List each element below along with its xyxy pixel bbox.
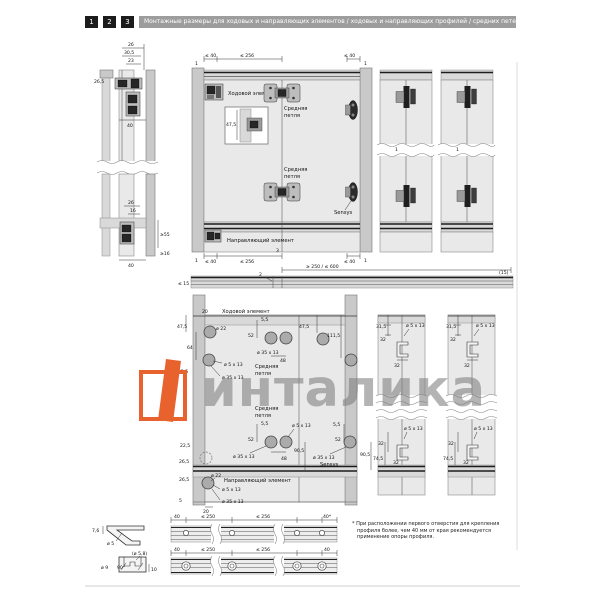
watermark-text: инталика: [201, 358, 486, 422]
part-label-guide: Направляющий элемент: [224, 477, 291, 484]
dim-label: 1: [456, 147, 459, 153]
dim-label: ≤ 256: [256, 547, 270, 553]
dim-label: ≥55: [160, 232, 170, 238]
dim-label: 31,5: [376, 324, 386, 330]
technical-drawing: 26 30,5 23 26,5 40 26 16 ≥55 ≥16 40: [0, 0, 600, 600]
dim-label: 48: [281, 456, 287, 462]
dim-label: ≤ 40: [344, 53, 355, 59]
footnote-line: применение опоры профиля.: [352, 534, 510, 541]
dim-label: 31,5: [446, 324, 456, 330]
part-label-hinge: Средняя: [284, 167, 307, 173]
intalika-logo-icon: [138, 358, 196, 424]
dim-label: ≤ 40: [205, 53, 216, 59]
dim-label: 40: [128, 263, 134, 269]
dim-label: 64: [187, 345, 193, 351]
section-side-view: 26 30,5 23 26,5 40 26 16 ≥55 ≥16 40: [94, 42, 170, 269]
dim-label: 40: [127, 123, 133, 129]
dim-label: (15): [499, 270, 509, 276]
dim-label: ≥16: [160, 251, 170, 257]
dim-label: 16: [130, 208, 136, 214]
dim-label: 32: [380, 337, 386, 343]
dim-label: 90°: [117, 565, 125, 571]
dim-label: ≤ 250: [201, 514, 215, 520]
dim-label: 3: [276, 248, 279, 254]
dim-label: 74,5: [443, 456, 453, 462]
part-label-sensys: Sensys: [320, 462, 339, 468]
dim-label: 52: [248, 333, 254, 339]
dim-label: 26,5: [179, 459, 189, 465]
dim-label: ≤ 250: [201, 547, 215, 553]
dim-label: 90,5: [294, 448, 304, 454]
dim-label: 20: [202, 309, 208, 315]
dim-label: 1: [195, 61, 198, 67]
dim-label: ø 22: [211, 473, 221, 479]
dim-label: 40: [174, 547, 180, 553]
dim-label: 30,5: [124, 50, 134, 56]
dim-label: 7,6: [92, 528, 99, 534]
watermark: инталика: [138, 358, 486, 424]
dim-label: 22,5: [180, 443, 190, 449]
dim-label: 52: [248, 437, 254, 443]
section-profile-length: ≥ 250 / ≤ 600 2 ≤ 15 (15): [178, 264, 513, 288]
dim-label: 40: [324, 547, 330, 553]
dim-label: 52: [335, 437, 341, 443]
dim-label: ≤ 256: [240, 259, 254, 265]
dim-label: 1: [364, 61, 367, 67]
part-label-hinge: петля: [284, 113, 300, 119]
dim-label: 26: [128, 200, 134, 206]
part-label-hinge: петля: [284, 174, 300, 180]
dim-label: ≤ 40: [205, 259, 216, 265]
part-label-running: Ходовой элемент: [222, 308, 270, 315]
dim-label: 1: [195, 258, 198, 264]
dim-label: ø 5 x 13: [474, 426, 493, 432]
dim-label: 32: [463, 460, 469, 466]
dim-label: 26,5: [94, 79, 104, 85]
dim-label: 23: [128, 58, 134, 64]
dim-label: ø 35 x 13: [313, 455, 335, 461]
dim-label: ø 5 x 13: [222, 487, 241, 493]
dim-label: ø 5: [107, 541, 114, 547]
dim-label: ø 5 x 13: [476, 323, 495, 329]
dim-label: ø 22: [216, 326, 226, 332]
dim-label: 2: [259, 272, 262, 278]
dim-label: 32: [448, 441, 454, 447]
dim-label: ≤ 15: [178, 281, 189, 287]
dim-label: ≤ 40: [344, 259, 355, 265]
dim-label: 47,5: [177, 324, 187, 330]
footnote-line: * При расположении первого отверстия для…: [352, 521, 510, 528]
dim-label: ø 5 x 13: [406, 323, 425, 329]
dim-label: ø 35 x 13: [233, 454, 255, 460]
dim-label: 5: [179, 498, 182, 504]
dim-label: 32: [393, 460, 399, 466]
dim-label: 1: [395, 147, 398, 153]
dim-label: 40*: [323, 514, 332, 520]
dim-label: 47,5: [299, 324, 309, 330]
dim-label: ≤ 256: [240, 53, 254, 59]
dim-label: 1: [364, 258, 367, 264]
part-label-hinge: Средняя: [284, 106, 307, 112]
dim-label: 32: [378, 441, 384, 447]
dim-label: (ø 5,8): [132, 551, 147, 557]
footnote: * При расположении первого отверстия для…: [352, 521, 510, 541]
section-front-view: ≤ 40 ≤ 256 ≤ 40 1 1 Ходовой элемент Сред…: [192, 53, 372, 265]
dim-label: 90,5: [360, 452, 370, 458]
dim-label: ø 35 x 13: [222, 499, 244, 505]
dim-label: 74,5: [373, 456, 383, 462]
dim-label: ≤ 256: [256, 514, 270, 520]
dim-label: ≥ 250 / ≤ 600: [306, 264, 339, 270]
dim-label: ø 5 x 13: [404, 426, 423, 432]
dim-label: 47,5: [226, 122, 236, 128]
dim-label: 5,5: [261, 317, 268, 323]
dim-label: 32: [450, 337, 456, 343]
dim-label: 40: [174, 514, 180, 520]
part-label-guide: Направляющий элемент: [227, 237, 294, 244]
dim-label: 26,5: [179, 477, 189, 483]
dim-label: 111,5: [327, 333, 340, 339]
part-label-sensys: Sensys: [334, 210, 353, 216]
dim-label: 10: [151, 567, 157, 573]
dim-label: 26: [128, 42, 134, 48]
dim-label: ø 9: [101, 565, 108, 571]
dim-label: ø 35 x 13: [257, 350, 279, 356]
